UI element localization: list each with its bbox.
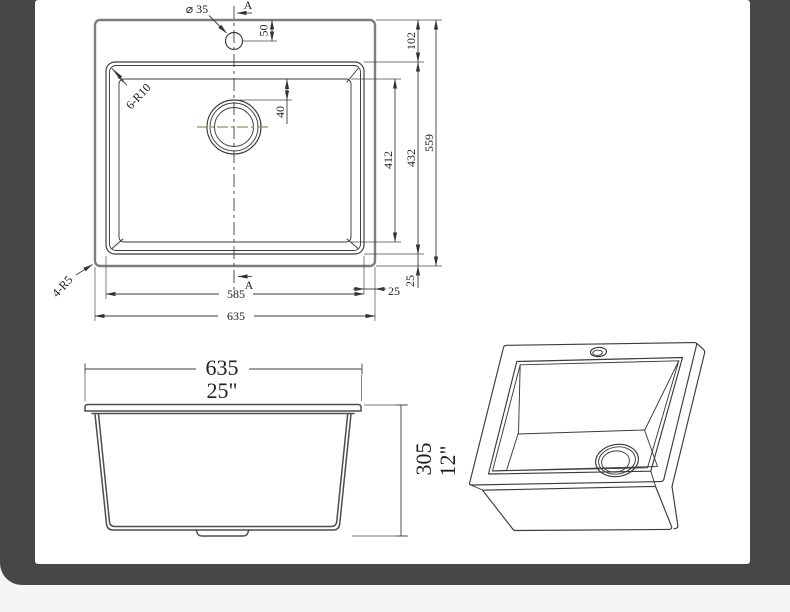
dim-25h: 25 [388, 284, 400, 298]
front-width-mm: 635 [206, 355, 239, 380]
section-label-bottom: A [245, 278, 254, 292]
label-faucet-diameter: ⌀ 35 [186, 2, 208, 16]
dim-432: 432 [404, 149, 418, 167]
dim-102: 102 [404, 32, 418, 50]
drawing-page: 50 102 412 432 559 40 25 25 [0, 0, 790, 607]
dim-25v: 25 [403, 275, 417, 287]
front-height-mm: 305 [411, 443, 436, 476]
dim-50: 50 [257, 25, 271, 37]
iso-seam-front-left [493, 470, 507, 471]
dim-559: 559 [422, 134, 436, 152]
section-label-top: A [244, 0, 253, 12]
dim-40: 40 [273, 106, 287, 118]
sink-technical-drawing: 50 102 412 432 559 40 25 25 [0, 0, 790, 607]
front-width-in: 25" [207, 378, 238, 403]
dim-635: 635 [227, 309, 245, 323]
dim-585: 585 [227, 287, 245, 301]
front-height-in: 12" [435, 446, 460, 477]
dim-412: 412 [381, 151, 395, 169]
